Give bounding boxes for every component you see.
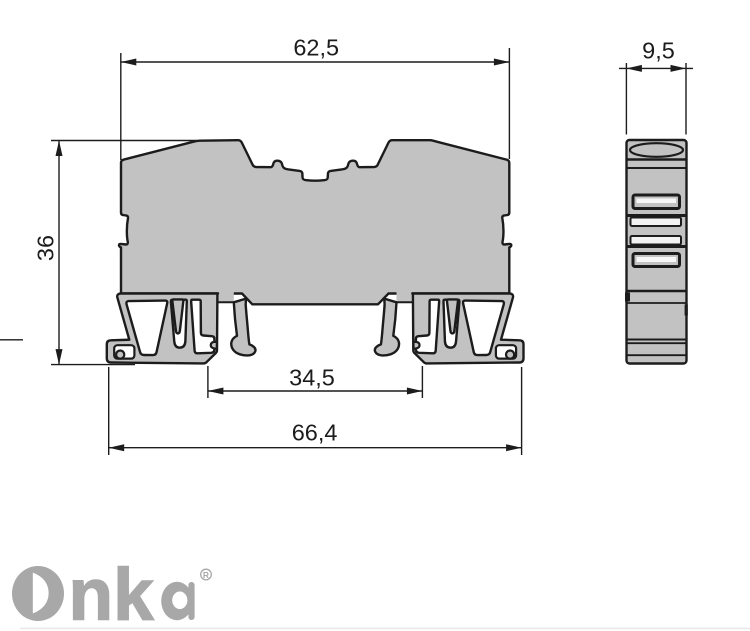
svg-text:62,5: 62,5: [293, 34, 339, 60]
svg-text:nk: nk: [69, 555, 155, 631]
svg-text:34,5: 34,5: [289, 365, 335, 391]
svg-text:R: R: [203, 570, 209, 580]
svg-text:66,4: 66,4: [292, 420, 338, 446]
svg-text:9,5: 9,5: [642, 38, 675, 64]
svg-text:36: 36: [33, 235, 59, 261]
